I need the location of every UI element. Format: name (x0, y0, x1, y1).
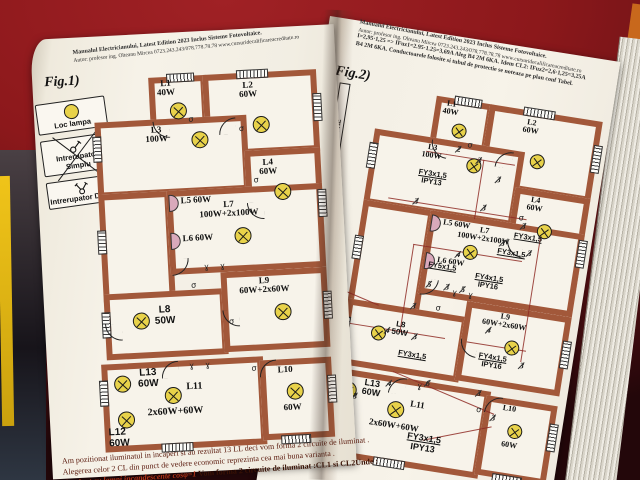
floor-plan-fig1: L140W L260W L3100W L460W L560W L660W L71… (86, 69, 337, 453)
floor-plan-fig2: L140W L260W L3100W L460W L560W L660W L71… (315, 86, 605, 480)
switch-double-icon (467, 291, 473, 300)
room-label-l5: L5 (180, 196, 191, 206)
room-label-l10: L10 (277, 365, 292, 375)
switch-single-icon (191, 282, 196, 290)
switch-single-icon (188, 116, 193, 124)
window-icon (97, 230, 107, 254)
window-icon (281, 434, 311, 445)
room-label-l5: L5 (442, 218, 453, 228)
switch-double-icon (204, 263, 209, 271)
legend-label: Loc lampa (54, 117, 92, 130)
room-label-l10-watt: 60W (283, 402, 301, 412)
switch-double-icon (189, 362, 194, 370)
window-icon (236, 69, 268, 80)
left-page-header: Manualul Electricianului, Latest Edition… (72, 25, 312, 64)
switch-single-icon (253, 176, 258, 184)
switch-single-icon (229, 318, 234, 326)
room-label-l11: L11 (410, 399, 426, 411)
switch-single-icon (435, 304, 441, 313)
left-page: Manualul Electricianului, Latest Edition… (30, 24, 357, 479)
window-icon (161, 442, 193, 453)
book-photo: Manualul Electricianului, Latest Edition… (0, 0, 640, 480)
switch-double-icon (220, 262, 225, 270)
switch-double-icon (452, 289, 458, 298)
right-page-header: Manualul Electricianului, Latest Edition… (355, 19, 618, 96)
switch-single-icon (251, 365, 256, 373)
room-label-l11: L11 (186, 381, 203, 392)
fig1-label: Fig.1) (44, 73, 80, 91)
room-hall (98, 191, 176, 303)
window-icon (92, 136, 102, 162)
window-icon (99, 380, 109, 406)
switch-double-icon (417, 382, 423, 391)
switch-single-icon (239, 125, 244, 133)
room-label-l6: L6 (182, 234, 193, 244)
switch-double-icon (205, 361, 210, 369)
